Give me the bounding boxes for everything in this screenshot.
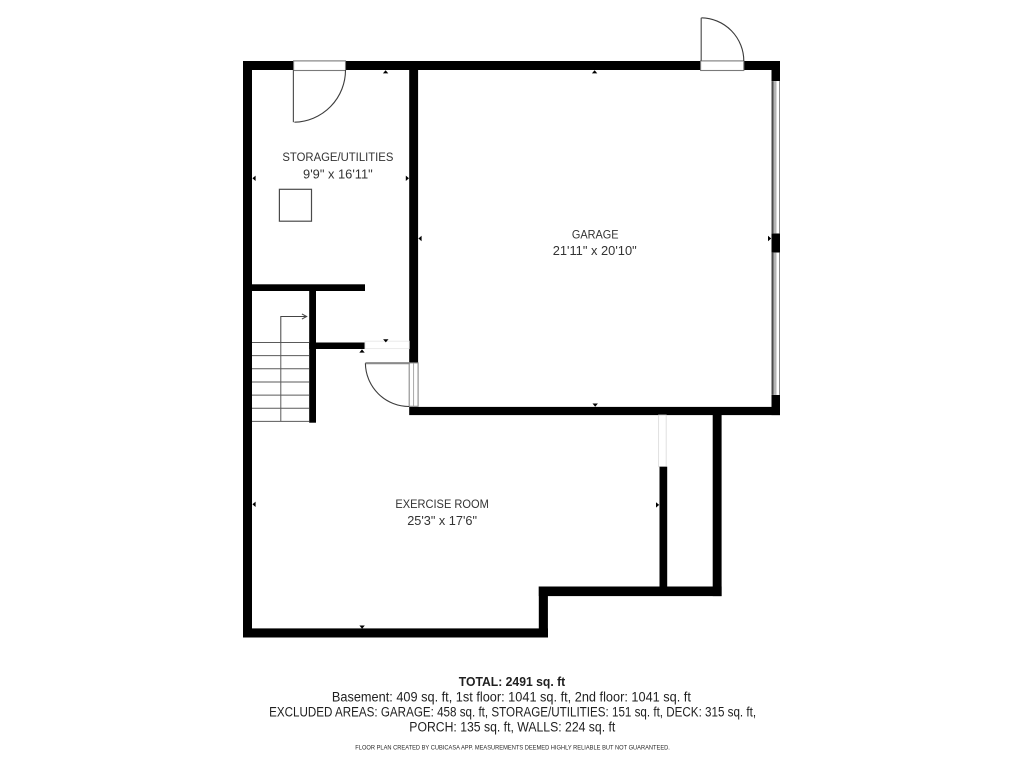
svg-text:25'3" x 17'6": 25'3" x 17'6" xyxy=(407,513,477,528)
svg-text:9'9" x 16'11": 9'9" x 16'11" xyxy=(303,166,373,181)
svg-text:PORCH: 135 sq. ft, WALLS: 224: PORCH: 135 sq. ft, WALLS: 224 sq. ft xyxy=(409,720,615,735)
svg-text:GARAGE: GARAGE xyxy=(572,230,619,242)
svg-text:21'11" x 20'10": 21'11" x 20'10" xyxy=(553,243,637,258)
svg-text:TOTAL: 2491 sq. ft: TOTAL: 2491 sq. ft xyxy=(459,674,566,689)
svg-text:EXCLUDED AREAS: GARAGE: 458 sq: EXCLUDED AREAS: GARAGE: 458 sq. ft, STOR… xyxy=(269,705,756,720)
svg-text:Basement: 409 sq. ft, 1st floo: Basement: 409 sq. ft, 1st floor: 1041 sq… xyxy=(332,689,691,704)
svg-text:EXERCISE ROOM: EXERCISE ROOM xyxy=(395,499,489,511)
svg-text:STORAGE/UTILITIES: STORAGE/UTILITIES xyxy=(282,152,393,164)
svg-text:FLOOR PLAN CREATED BY CUBICASA: FLOOR PLAN CREATED BY CUBICASA APP. MEAS… xyxy=(355,744,670,751)
